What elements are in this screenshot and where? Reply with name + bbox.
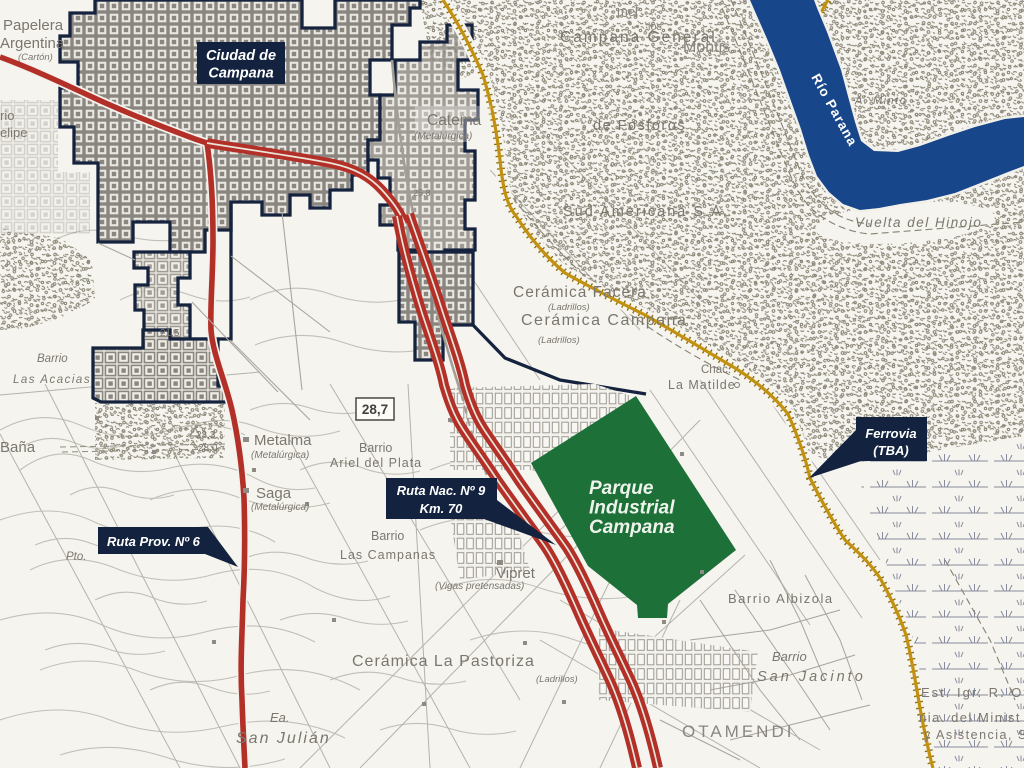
svg-text:(Vigas pretensadas): (Vigas pretensadas) [435,581,524,592]
svg-text:(Ladrillos): (Ladrillos) [538,335,580,346]
svg-text:23,3: 23,3 [196,430,216,441]
svg-text:Km. 70: Km. 70 [420,501,463,516]
svg-text:OTAMENDI: OTAMENDI [682,722,794,741]
svg-text:Est. Igr. R. Ota: Est. Igr. R. Ota [921,685,1024,700]
svg-text:Campana: Campana [208,66,273,82]
svg-text:Las Acacias: Las Acacias [13,374,91,386]
svg-text:Ruta Prov. Nº 6: Ruta Prov. Nº 6 [107,534,201,549]
svg-text:A. Minto: A. Minto [854,95,907,107]
svg-text:Ea.: Ea. [270,710,290,725]
svg-text:Campana General: Campana General [560,29,717,46]
svg-text:Barrio: Barrio [37,353,68,365]
svg-text:elipe: elipe [0,125,27,140]
svg-text:Ferrovia: Ferrovia [865,426,916,441]
svg-text:21,5: 21,5 [160,328,180,339]
svg-text:Parque: Parque [589,478,654,499]
svg-text:mel: mel [617,4,638,19]
svg-text:Baña: Baña [0,439,36,456]
svg-text:Vuelta del Hinojo: Vuelta del Hinojo [855,215,982,230]
svg-text:Ruta Nac. Nº 9: Ruta Nac. Nº 9 [397,483,486,498]
svg-text:Campana: Campana [589,517,675,538]
svg-text:(Ladrillos): (Ladrillos) [536,674,578,685]
svg-text:La Matilde: La Matilde [668,378,736,392]
svg-text:Argentina: Argentina [0,35,65,52]
svg-text:San Jacinto: San Jacinto [757,669,866,685]
svg-text:y Asistencia, S: y Asistencia, S [924,728,1024,742]
svg-text:Barrio: Barrio [772,649,807,664]
svg-text:Vipret: Vipret [496,565,536,582]
svg-text:Catema: Catema [427,112,482,129]
svg-text:(Metalúrgica): (Metalúrgica) [251,450,309,461]
svg-text:Cerámica Campana: Cerámica Campana [521,312,687,329]
svg-text:Ciudad de: Ciudad de [206,48,276,64]
svg-text:Industrial: Industrial [589,498,675,519]
svg-text:25,8: 25,8 [413,188,431,198]
svg-text:(Cartón): (Cartón) [18,52,53,63]
svg-text:(Metalúrgica): (Metalúrgica) [414,131,472,142]
svg-text:(TBA): (TBA) [873,443,908,458]
svg-text:nia. del Minist: nia. del Minist [919,710,1021,725]
svg-text:Papelera: Papelera [3,17,64,34]
svg-text:Sud Americana S.A.: Sud Americana S.A. [563,204,729,220]
svg-text:Ariel del Plata: Ariel del Plata [330,456,422,470]
svg-text:Saga: Saga [256,485,292,502]
svg-text:Metalma: Metalma [254,432,312,449]
svg-text:San Julián: San Julián [236,730,331,747]
svg-text:de Fosforos: de Fosforos [593,118,686,134]
svg-text:Chac.: Chac. [701,364,731,376]
svg-text:(Metalúrgica): (Metalúrgica) [251,502,309,513]
svg-text:Pto.: Pto. [66,551,86,563]
svg-text:Cerámica Facera: Cerámica Facera [513,284,647,301]
svg-text:Barrio Albizola: Barrio Albizola [728,591,834,606]
svg-text:Las Campanas: Las Campanas [340,548,436,562]
svg-text:28,0: 28,0 [198,443,218,454]
svg-text:Barrio: Barrio [359,441,392,455]
svg-text:rio: rio [0,108,14,123]
svg-text:28,7: 28,7 [362,402,388,417]
svg-text:Cerámica La Pastoriza: Cerámica La Pastoriza [352,653,535,670]
svg-text:Barrio: Barrio [371,529,404,543]
